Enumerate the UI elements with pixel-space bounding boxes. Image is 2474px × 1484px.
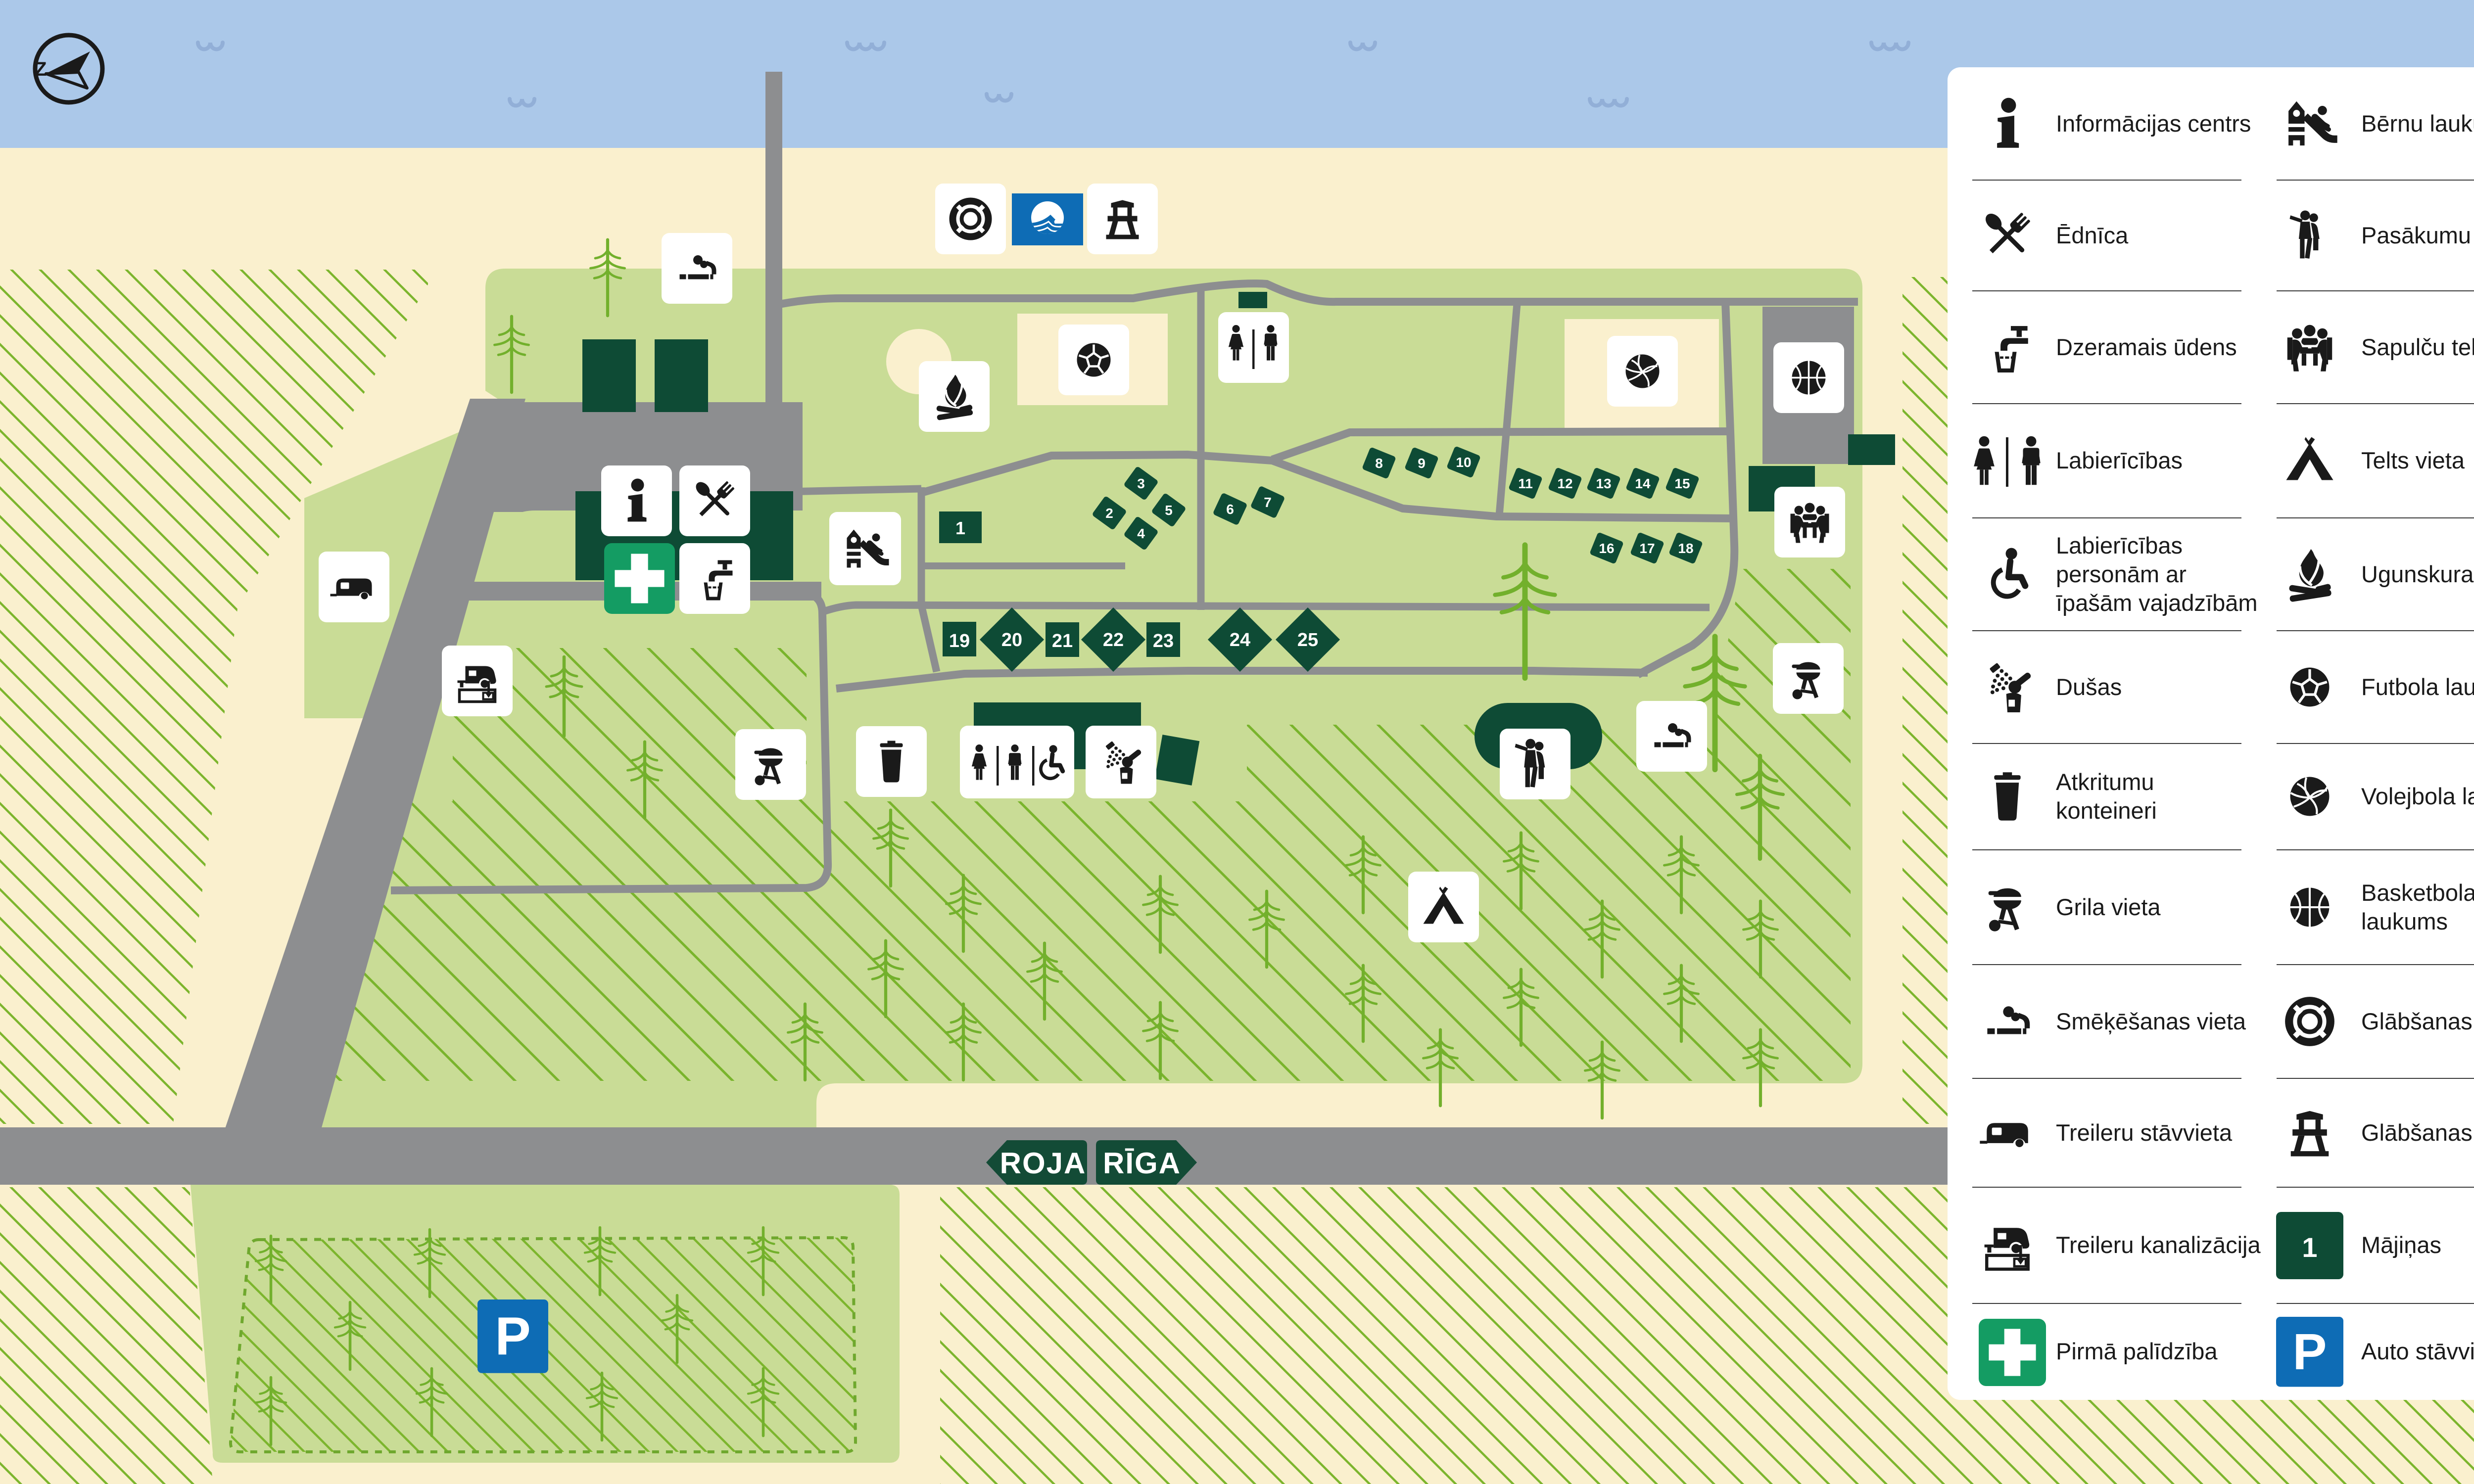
svg-text:22: 22	[1103, 630, 1124, 650]
svg-text:Mājiņas: Mājiņas	[2361, 1232, 2441, 1258]
svg-text:4: 4	[1137, 526, 1145, 541]
svg-text:īpašām vajadzībām: īpašām vajadzībām	[2056, 590, 2258, 616]
svg-text:11: 11	[1518, 476, 1533, 491]
svg-text:Treileru kanalizācija: Treileru kanalizācija	[2056, 1232, 2261, 1258]
svg-text:15: 15	[1674, 476, 1690, 491]
svg-text:Basketbola: Basketbola	[2361, 880, 2474, 906]
svg-text:Futbola laukums: Futbola laukums	[2361, 674, 2474, 700]
svg-text:Atkritumu: Atkritumu	[2056, 769, 2154, 795]
svg-text:Z: Z	[35, 58, 47, 80]
svg-text:Ugunskura vieta: Ugunskura vieta	[2361, 561, 2474, 587]
svg-text:Smēķēšanas vieta: Smēķēšanas vieta	[2056, 1008, 2246, 1034]
svg-text:konteineri: konteineri	[2056, 797, 2157, 824]
svg-text:Labierīcības: Labierīcības	[2056, 532, 2183, 558]
svg-text:18: 18	[1678, 541, 1693, 556]
svg-text:23: 23	[1153, 631, 1174, 651]
svg-text:19: 19	[949, 631, 970, 651]
svg-text:1: 1	[2302, 1232, 2317, 1263]
svg-text:Treileru stāvvieta: Treileru stāvvieta	[2056, 1119, 2233, 1146]
svg-text:7: 7	[1264, 495, 1272, 510]
svg-text:8: 8	[1375, 456, 1383, 471]
svg-text:24: 24	[1230, 630, 1250, 650]
svg-text:Telts vieta: Telts vieta	[2361, 447, 2465, 473]
svg-text:16: 16	[1599, 541, 1614, 556]
svg-text:Informācijas centrs: Informācijas centrs	[2056, 110, 2251, 137]
svg-text:20: 20	[1001, 630, 1022, 650]
svg-text:9: 9	[1418, 456, 1426, 471]
svg-text:13: 13	[1596, 476, 1611, 491]
svg-text:12: 12	[1557, 476, 1572, 491]
svg-text:Bērnu laukums: Bērnu laukums	[2361, 110, 2474, 137]
svg-text:1: 1	[955, 518, 965, 538]
svg-text:2: 2	[1105, 506, 1113, 521]
svg-text:Auto stāvvieta: Auto stāvvieta	[2361, 1338, 2474, 1364]
svg-text:Pasākumu telts: Pasākumu telts	[2361, 222, 2474, 248]
svg-text:Pirmā palīdzība: Pirmā palīdzība	[2056, 1338, 2218, 1364]
svg-text:Glābšanas dienests: Glābšanas dienests	[2361, 1119, 2474, 1146]
svg-text:Sapulču telpa: Sapulču telpa	[2361, 334, 2474, 360]
svg-text:10: 10	[1456, 455, 1471, 470]
svg-text:5: 5	[1165, 503, 1173, 518]
svg-text:ROJA: ROJA	[1000, 1147, 1087, 1180]
svg-text:Grila vieta: Grila vieta	[2056, 894, 2161, 920]
svg-text:Dušas: Dušas	[2056, 674, 2122, 700]
svg-text:Glābšanas riņķis: Glābšanas riņķis	[2361, 1008, 2474, 1034]
svg-text:Ēdnīca: Ēdnīca	[2056, 222, 2129, 248]
svg-text:6: 6	[1226, 502, 1234, 517]
svg-text:3: 3	[1137, 476, 1145, 491]
svg-text:Labierīcības: Labierīcības	[2056, 447, 2183, 473]
svg-text:Volejbola laukums: Volejbola laukums	[2361, 783, 2474, 809]
svg-text:14: 14	[1635, 476, 1651, 491]
svg-text:25: 25	[1297, 630, 1318, 650]
svg-text:RĪGA: RĪGA	[1103, 1147, 1181, 1180]
svg-text:laukums: laukums	[2361, 908, 2448, 934]
svg-text:personām ar: personām ar	[2056, 561, 2187, 587]
svg-text:21: 21	[1052, 631, 1073, 651]
svg-text:Dzeramais ūdens: Dzeramais ūdens	[2056, 334, 2237, 360]
svg-text:17: 17	[1639, 541, 1655, 556]
